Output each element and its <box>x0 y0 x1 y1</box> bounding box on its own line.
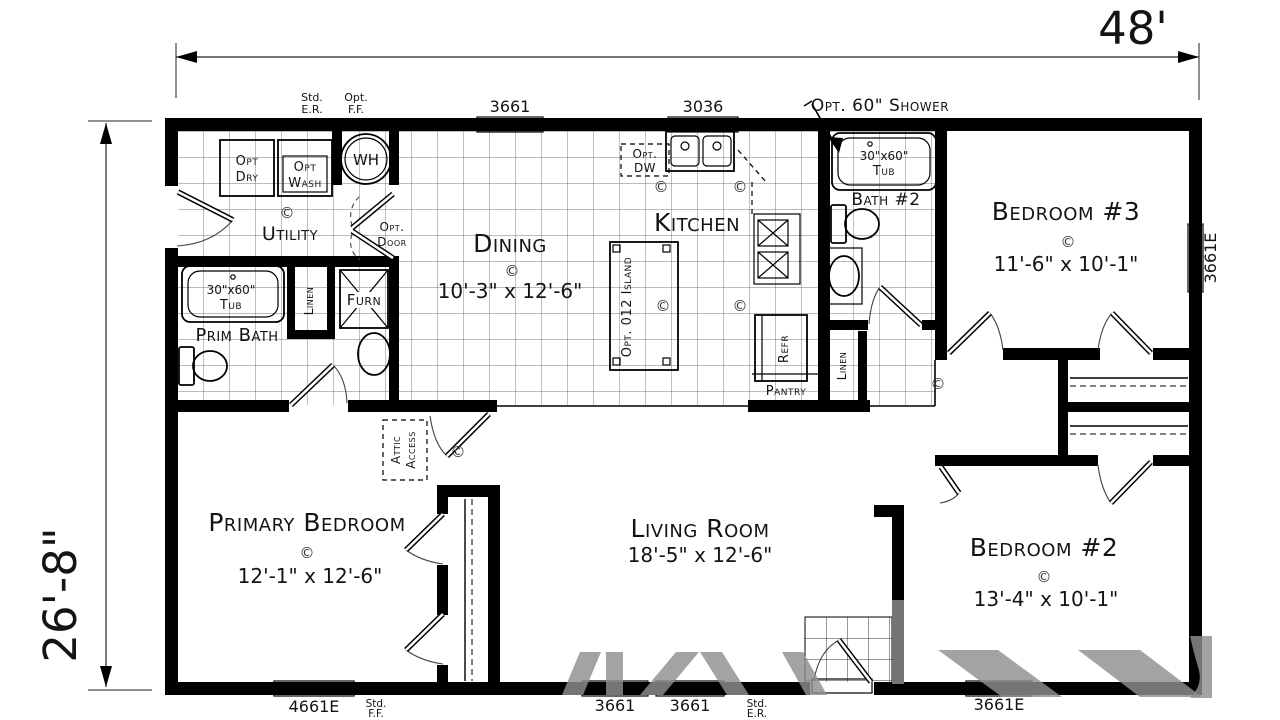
pantry-label: Pantry <box>766 384 806 399</box>
tub-label: Tub <box>219 298 242 313</box>
opt-door-label: Opt. <box>380 220 405 234</box>
room-bath2: Bath #2 <box>851 190 920 210</box>
window-label: 3661 <box>490 97 531 116</box>
copyright-symbol: © <box>733 297 748 315</box>
window-label: 3661E <box>1201 233 1220 284</box>
tub-label: Tub <box>872 164 895 179</box>
room-primary-size: 12'-1" x 12'-6" <box>238 564 383 588</box>
copyright-symbol: © <box>931 375 946 393</box>
opt-door-label: Door <box>377 235 406 249</box>
window-label: 4661E <box>289 697 340 716</box>
water-heater-label: WH <box>353 151 379 169</box>
room-kitchen: Kitchen <box>654 208 740 237</box>
attic-access-label: Attic <box>389 436 403 464</box>
room-primary-bedroom: Primary Bedroom <box>208 508 405 537</box>
furnace-label: Furn <box>347 291 382 309</box>
room-bedroom3: Bedroom #3 <box>992 197 1141 226</box>
copyright-symbol: © <box>1037 568 1052 586</box>
room-bedroom2: Bedroom #2 <box>970 533 1119 562</box>
tub-size-label: 30"x60" <box>207 283 256 297</box>
floor-plan: 48' 26'-8" <box>0 0 1280 720</box>
dryer-label: Dry <box>236 170 259 185</box>
copyright-symbol: © <box>280 204 295 222</box>
opt-shower-label: Opt. 60" Shower <box>811 96 949 116</box>
window-label: 3661 <box>670 696 711 715</box>
washer-label: Wash <box>288 176 322 191</box>
linen-bath-label: Linen <box>302 287 316 316</box>
dim-width-label: 48' <box>1098 2 1168 55</box>
room-living: Living Room <box>631 514 770 543</box>
room-bedroom3-size: 11'-6" x 10'-1" <box>994 252 1139 276</box>
window-label: 3661 <box>595 696 636 715</box>
std-er-bottom: E.R. <box>747 708 767 720</box>
island-label: Opt. 012 Island <box>620 257 635 357</box>
copyright-symbol: © <box>451 443 466 461</box>
tub-size-label: 30"x60" <box>860 149 909 163</box>
dishwasher-label: DW <box>634 161 656 175</box>
copyright-symbol: © <box>656 297 671 315</box>
std-er-top: E.R. <box>301 103 322 116</box>
room-bedroom2-size: 13'-4" x 10'-1" <box>974 587 1119 611</box>
window-label: 3036 <box>683 97 724 116</box>
std-ff-bottom: F.F. <box>368 708 383 720</box>
refrigerator-label: Refr <box>777 335 792 363</box>
linen-hall-label: Linen <box>835 352 849 381</box>
room-dining-size: 10'-3" x 12'-6" <box>438 279 583 303</box>
copyright-symbol: © <box>733 178 748 196</box>
window-right-bedroom3: 3661E <box>1188 224 1220 292</box>
room-prim-bath: Prim Bath <box>195 325 278 346</box>
dishwasher-label: Opt. <box>633 147 658 161</box>
opt-ff-top: F.F. <box>348 103 364 116</box>
room-dining: Dining <box>473 229 547 258</box>
room-living-size: 18'-5" x 12'-6" <box>628 543 773 567</box>
attic-access-label: Access <box>404 431 418 469</box>
copyright-symbol: © <box>654 178 669 196</box>
dryer-label: Opt <box>236 154 259 169</box>
copyright-symbol: © <box>300 544 315 562</box>
copyright-symbol: © <box>505 262 520 280</box>
washer-label: Opt <box>294 160 317 175</box>
room-utility: Utility <box>262 223 318 245</box>
window-label: 3661E <box>974 695 1025 714</box>
copyright-symbol: © <box>1061 233 1076 251</box>
dim-depth-label: 26'-8" <box>34 527 87 662</box>
